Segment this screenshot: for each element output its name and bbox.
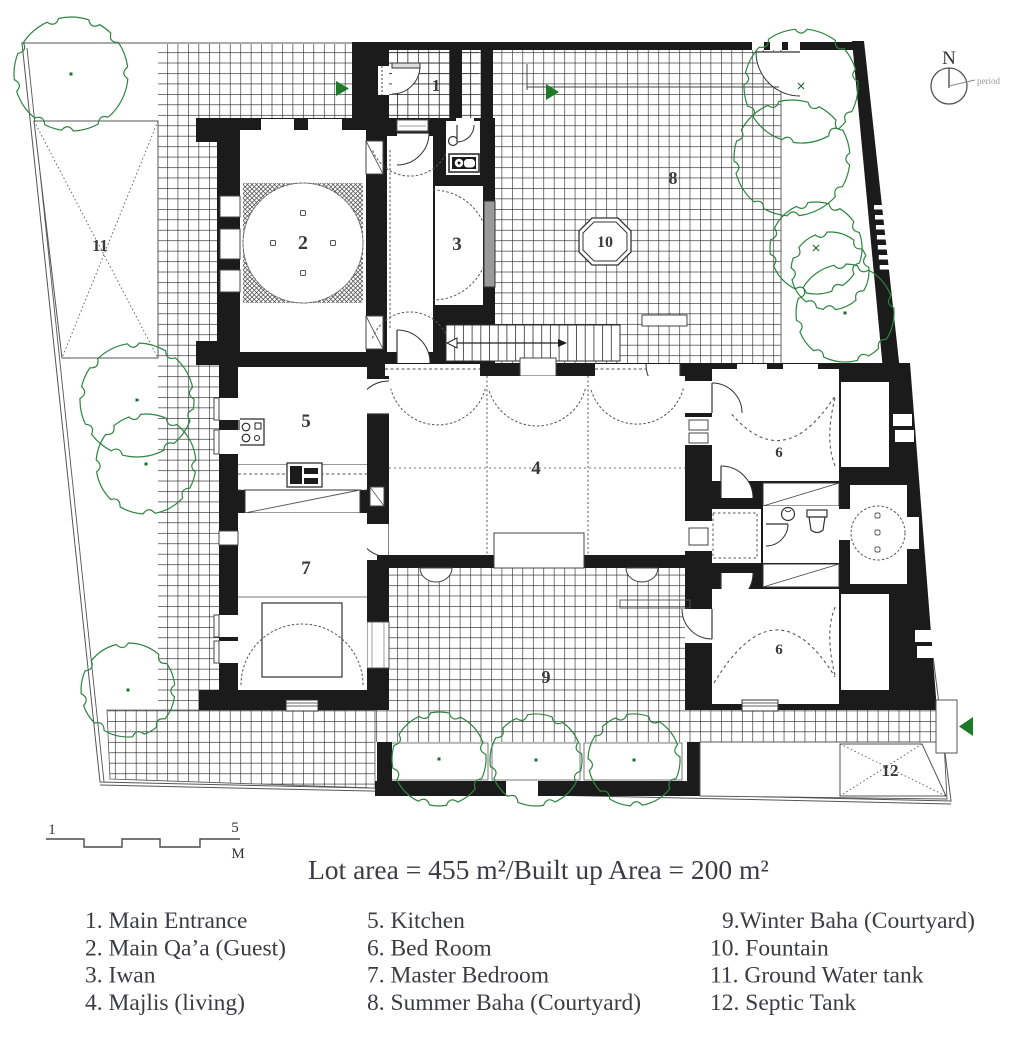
- svg-text:12: 12: [882, 761, 899, 780]
- svg-text:8: 8: [669, 168, 678, 188]
- svg-text:7. Master Bedroom: 7. Master Bedroom: [367, 963, 549, 989]
- svg-text:5: 5: [231, 820, 239, 836]
- svg-text:11. Ground Water tank: 11. Ground Water tank: [710, 963, 924, 989]
- svg-text:2. Main Qa’a (Guest): 2. Main Qa’a (Guest): [85, 935, 286, 961]
- svg-text:10. Fountain: 10. Fountain: [710, 935, 829, 961]
- svg-text:10: 10: [597, 234, 613, 251]
- svg-text:11: 11: [92, 236, 108, 255]
- svg-text:8. Summer Baha (Courtyard): 8. Summer Baha (Courtyard): [367, 990, 641, 1016]
- svg-text:Lot area = 455 m²/Built up Are: Lot area = 455 m²/Built up Area = 200 m²: [308, 854, 769, 885]
- svg-text:5. Kitchen: 5. Kitchen: [367, 908, 465, 934]
- svg-text:9: 9: [542, 667, 551, 687]
- svg-text:period: period: [977, 76, 1000, 86]
- svg-text:3. Iwan: 3. Iwan: [85, 963, 156, 989]
- svg-text:6: 6: [775, 445, 783, 461]
- svg-text:2: 2: [298, 232, 308, 254]
- svg-text:M: M: [231, 846, 244, 862]
- svg-text:5: 5: [301, 411, 311, 432]
- svg-text:4: 4: [531, 458, 541, 479]
- svg-text:1: 1: [432, 76, 441, 95]
- svg-text:7: 7: [301, 558, 311, 579]
- svg-text:6: 6: [775, 642, 783, 658]
- svg-text:1. Main Entrance: 1. Main Entrance: [85, 908, 247, 934]
- svg-text:6. Bed Room: 6. Bed Room: [367, 935, 492, 961]
- svg-text:9.Winter Baha (Courtyard): 9.Winter Baha (Courtyard): [722, 908, 975, 934]
- svg-text:3: 3: [452, 234, 462, 255]
- svg-text:12. Septic Tank: 12. Septic Tank: [710, 990, 856, 1016]
- svg-text:N: N: [942, 48, 956, 69]
- svg-text:4. Majlis (living): 4. Majlis (living): [85, 990, 245, 1016]
- svg-text:1: 1: [48, 822, 56, 838]
